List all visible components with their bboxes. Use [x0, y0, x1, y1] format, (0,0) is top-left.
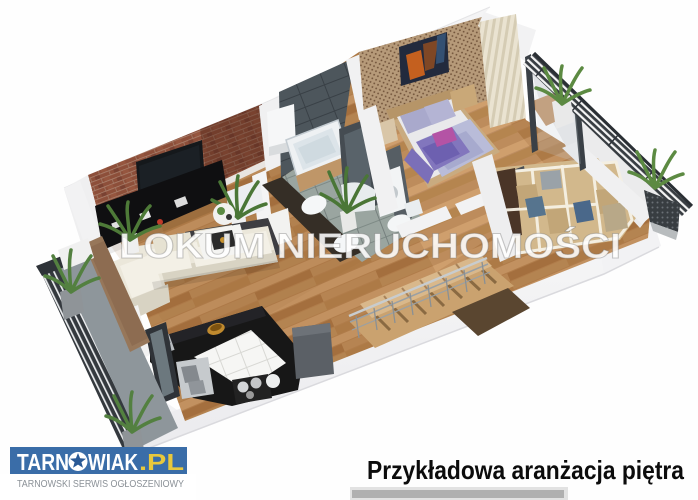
- svg-text:.PL: .PL: [139, 449, 184, 475]
- svg-text:WIAK: WIAK: [88, 449, 138, 475]
- svg-text:LOKUM NIERUCHOMOŚCI: LOKUM NIERUCHOMOŚCI: [119, 226, 621, 266]
- svg-text:Przykładowa aranżacja piętra: Przykładowa aranżacja piętra: [367, 455, 684, 485]
- svg-text:TARNOWSKI SERWIS OGŁOSZENIOWY: TARNOWSKI SERWIS OGŁOSZENIOWY: [17, 478, 184, 490]
- svg-text:TARN: TARN: [17, 449, 69, 475]
